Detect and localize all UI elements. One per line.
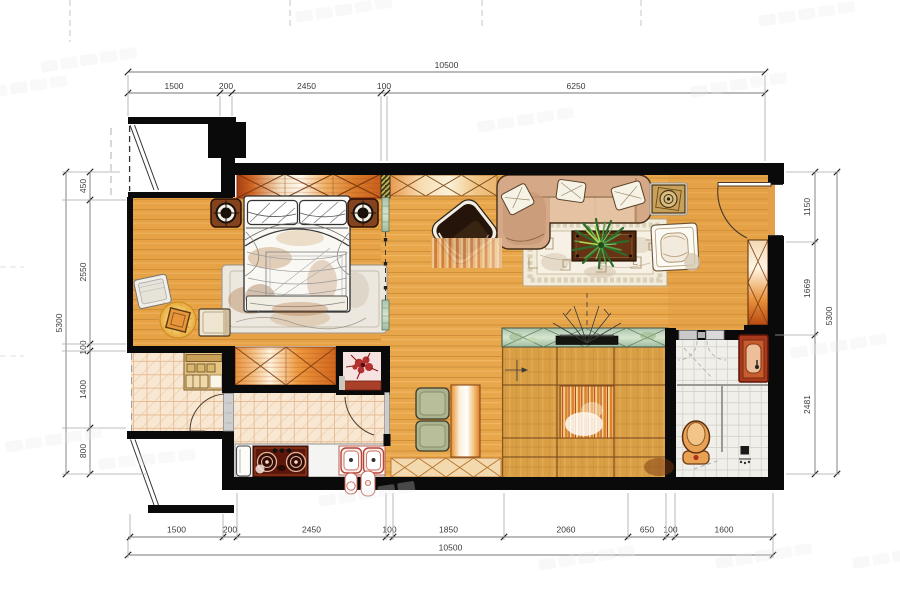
svg-text:200: 200 bbox=[223, 525, 237, 535]
svg-text:1400: 1400 bbox=[78, 380, 88, 399]
svg-text:10500: 10500 bbox=[435, 60, 459, 70]
svg-text:200: 200 bbox=[219, 81, 233, 91]
svg-text:1600: 1600 bbox=[715, 525, 734, 535]
svg-text:100: 100 bbox=[382, 525, 396, 535]
svg-text:5300: 5300 bbox=[824, 306, 834, 325]
svg-text:100: 100 bbox=[377, 81, 391, 91]
svg-text:100: 100 bbox=[78, 340, 88, 354]
svg-text:450: 450 bbox=[78, 179, 88, 193]
svg-text:1669: 1669 bbox=[802, 279, 812, 298]
svg-text:2060: 2060 bbox=[557, 525, 576, 535]
svg-text:1850: 1850 bbox=[439, 525, 458, 535]
svg-text:2481: 2481 bbox=[802, 395, 812, 414]
svg-text:5300: 5300 bbox=[54, 313, 64, 332]
svg-text:6250: 6250 bbox=[567, 81, 586, 91]
svg-text:10500: 10500 bbox=[439, 543, 463, 553]
svg-text:2450: 2450 bbox=[297, 81, 316, 91]
svg-text:800: 800 bbox=[78, 444, 88, 458]
svg-text:650: 650 bbox=[640, 525, 654, 535]
svg-text:2550: 2550 bbox=[78, 262, 88, 281]
svg-text:1150: 1150 bbox=[802, 198, 812, 217]
svg-text:1500: 1500 bbox=[167, 525, 186, 535]
svg-text:2450: 2450 bbox=[302, 525, 321, 535]
svg-text:1500: 1500 bbox=[165, 81, 184, 91]
svg-text:100: 100 bbox=[663, 525, 677, 535]
